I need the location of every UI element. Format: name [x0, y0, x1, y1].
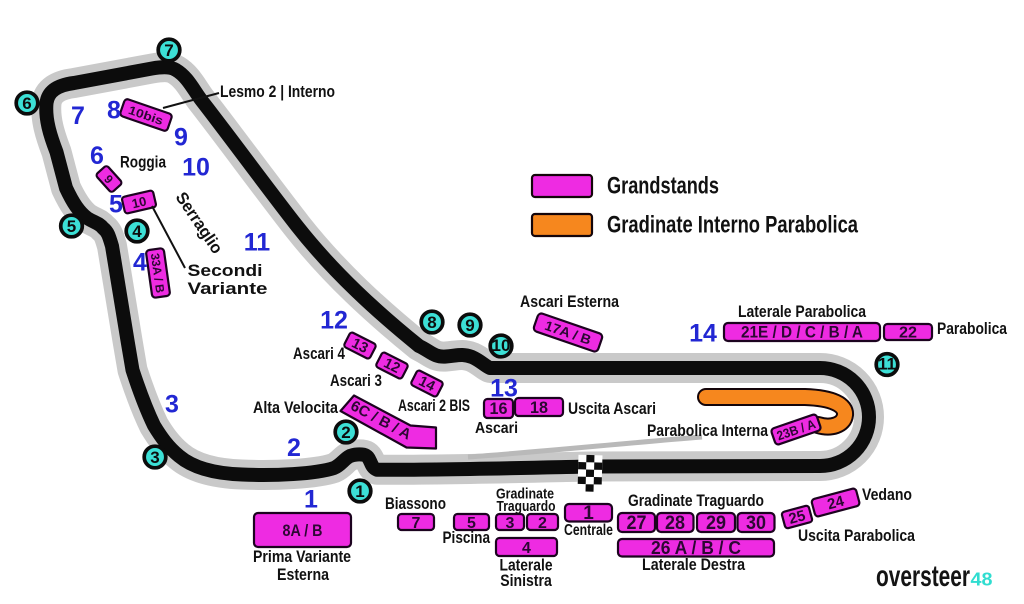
svg-text:1: 1 — [304, 486, 318, 514]
svg-text:28: 28 — [665, 513, 685, 534]
svg-text:14: 14 — [689, 320, 717, 348]
svg-text:Traguardo: Traguardo — [497, 498, 556, 515]
svg-text:7: 7 — [164, 41, 173, 60]
svg-text:Parabolica: Parabolica — [937, 319, 1007, 338]
svg-text:Uscita Parabolica: Uscita Parabolica — [798, 526, 915, 545]
svg-text:8: 8 — [427, 313, 436, 332]
svg-text:3: 3 — [150, 448, 159, 467]
svg-text:2: 2 — [287, 434, 301, 462]
svg-text:Uscita Ascari: Uscita Ascari — [568, 399, 656, 418]
svg-text:21E / D / C / B / A: 21E / D / C / B / A — [741, 324, 863, 342]
svg-text:10: 10 — [182, 154, 210, 182]
svg-text:Grandstands: Grandstands — [607, 173, 719, 200]
svg-text:7: 7 — [71, 102, 85, 130]
svg-text:11: 11 — [244, 229, 271, 257]
svg-text:8: 8 — [107, 97, 121, 125]
svg-text:6: 6 — [90, 142, 104, 170]
svg-text:Ascari Esterna: Ascari Esterna — [520, 292, 619, 311]
svg-text:48: 48 — [971, 570, 993, 590]
svg-text:8A / B: 8A / B — [283, 521, 323, 540]
svg-text:12: 12 — [320, 307, 348, 335]
svg-text:Piscina: Piscina — [443, 528, 491, 547]
svg-text:Prima Variante: Prima Variante — [253, 547, 351, 566]
svg-text:Lesmo 2 | Interno: Lesmo 2 | Interno — [220, 82, 335, 101]
svg-text:Biassono: Biassono — [385, 494, 446, 513]
svg-text:3: 3 — [506, 515, 515, 532]
svg-text:13: 13 — [490, 375, 518, 403]
svg-text:4: 4 — [522, 540, 531, 557]
svg-text:Ascari: Ascari — [475, 420, 518, 437]
svg-text:10: 10 — [492, 336, 511, 355]
svg-text:Alta Velocita: Alta Velocita — [253, 398, 338, 417]
svg-text:9: 9 — [174, 124, 188, 152]
svg-text:29: 29 — [706, 513, 726, 534]
svg-text:11: 11 — [878, 355, 896, 374]
svg-text:Ascari 4: Ascari 4 — [293, 344, 345, 363]
svg-text:1: 1 — [355, 482, 364, 501]
svg-text:Vedano: Vedano — [862, 485, 912, 504]
svg-text:Sinistra: Sinistra — [500, 571, 552, 590]
svg-text:7: 7 — [412, 515, 421, 532]
svg-text:4: 4 — [132, 222, 142, 241]
svg-text:3: 3 — [165, 391, 179, 419]
svg-text:2: 2 — [341, 423, 350, 442]
svg-text:Ascari 2 BIS: Ascari 2 BIS — [398, 396, 470, 415]
svg-text:Roggia: Roggia — [120, 153, 166, 172]
svg-text:Gradinate Traguardo: Gradinate Traguardo — [628, 491, 764, 510]
svg-text:Laterale Destra: Laterale Destra — [642, 555, 745, 574]
svg-text:Ascari 3: Ascari 3 — [330, 371, 382, 390]
svg-text:5: 5 — [67, 217, 76, 236]
svg-text:oversteer: oversteer — [876, 560, 970, 593]
svg-text:5: 5 — [109, 191, 123, 219]
svg-text:27: 27 — [627, 513, 647, 534]
svg-text:16: 16 — [490, 400, 508, 418]
svg-text:30: 30 — [746, 513, 766, 534]
svg-text:6: 6 — [22, 94, 31, 113]
svg-text:22: 22 — [899, 325, 917, 342]
svg-text:18: 18 — [530, 399, 548, 417]
svg-text:Gradinate Interno Parabolica: Gradinate Interno Parabolica — [607, 212, 858, 239]
svg-text:1: 1 — [583, 503, 594, 524]
svg-text:Laterale Parabolica: Laterale Parabolica — [738, 302, 866, 321]
svg-text:Secondi: Secondi — [188, 261, 263, 280]
svg-text:4: 4 — [133, 249, 147, 277]
svg-text:Esterna: Esterna — [277, 565, 329, 584]
svg-text:Variante: Variante — [188, 279, 268, 298]
svg-text:Centrale: Centrale — [564, 522, 613, 539]
svg-text:2: 2 — [538, 515, 547, 532]
svg-text:Parabolica Interna: Parabolica Interna — [647, 421, 768, 440]
svg-text:9: 9 — [465, 316, 474, 335]
